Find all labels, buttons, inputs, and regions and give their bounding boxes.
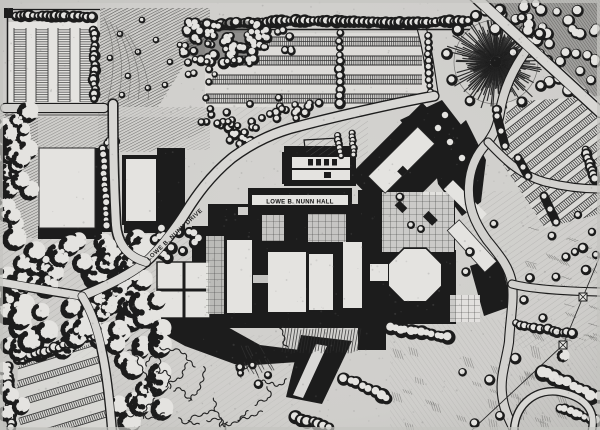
- svg-text:LOWE B. NUNN HALL: LOWE B. NUNN HALL: [266, 200, 333, 206]
